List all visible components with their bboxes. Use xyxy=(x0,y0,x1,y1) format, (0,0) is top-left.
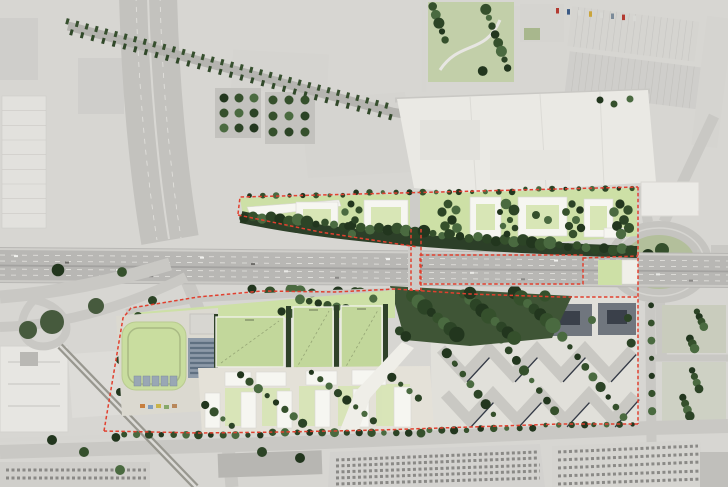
tree-icon xyxy=(648,320,655,327)
courtyard xyxy=(590,206,607,230)
tree-icon xyxy=(301,128,310,137)
tree-icon xyxy=(599,243,609,253)
tree-icon xyxy=(465,234,474,243)
tree-icon xyxy=(700,322,709,331)
tree-icon xyxy=(301,216,314,229)
tree-icon xyxy=(257,447,267,457)
tree-icon xyxy=(567,344,572,349)
tree-icon xyxy=(606,394,611,399)
industrial-roof xyxy=(78,58,124,114)
tree-icon xyxy=(344,222,352,230)
tree-icon xyxy=(235,109,244,118)
tree-icon xyxy=(627,96,634,103)
roof xyxy=(420,120,480,160)
car-icon xyxy=(656,273,660,275)
tree-icon xyxy=(649,373,655,379)
tree-icon xyxy=(512,356,521,365)
tree-icon xyxy=(501,57,507,63)
tree-icon xyxy=(564,243,572,251)
tree-icon xyxy=(301,96,310,105)
car-icon xyxy=(470,272,474,274)
tree-icon xyxy=(488,22,495,29)
tree-icon xyxy=(608,245,618,255)
tree-icon xyxy=(695,385,704,394)
tree-icon xyxy=(250,94,259,103)
tree-icon xyxy=(260,193,266,199)
tree-icon xyxy=(505,347,513,355)
ribbed-warehouse-roof xyxy=(2,96,46,228)
tree-icon xyxy=(369,295,377,303)
car-icon xyxy=(589,11,592,16)
car-icon xyxy=(521,278,525,280)
housing-slab xyxy=(315,390,330,427)
tree-icon xyxy=(568,200,575,207)
tree-icon xyxy=(315,299,322,306)
car-icon xyxy=(556,8,559,14)
car-icon xyxy=(578,10,581,16)
tree-icon xyxy=(428,2,437,11)
tree-icon xyxy=(504,231,511,238)
tree-icon xyxy=(497,209,503,215)
car-icon xyxy=(251,263,255,265)
tree-icon xyxy=(351,216,359,224)
tree-icon xyxy=(685,411,695,421)
tree-icon xyxy=(529,378,534,383)
industrial-roof xyxy=(0,18,38,80)
tree-icon xyxy=(482,234,492,244)
tree-icon xyxy=(504,426,509,431)
tree-icon xyxy=(401,331,412,342)
tree-icon xyxy=(265,393,270,398)
tree-icon xyxy=(220,109,229,118)
tree-icon xyxy=(615,199,624,208)
tree-icon xyxy=(572,216,580,224)
tree-icon xyxy=(556,422,561,427)
tree-icon xyxy=(306,429,313,436)
tree-icon xyxy=(648,390,655,397)
tree-icon xyxy=(348,201,355,208)
tree-icon xyxy=(237,371,244,378)
tree-icon xyxy=(309,370,314,375)
tree-icon xyxy=(437,207,446,216)
tree-icon xyxy=(281,406,288,413)
tree-icon xyxy=(624,314,632,322)
tree-icon xyxy=(79,447,89,457)
tree-icon xyxy=(439,28,445,34)
tree-icon xyxy=(491,236,501,246)
tree-icon xyxy=(452,223,462,233)
tree-icon xyxy=(555,241,562,248)
tree-icon xyxy=(112,433,121,442)
tree-icon xyxy=(464,428,469,433)
car-icon xyxy=(611,14,614,20)
tree-icon xyxy=(588,316,596,324)
tree-icon xyxy=(220,124,229,133)
tree-icon xyxy=(334,389,342,397)
tree-icon xyxy=(201,401,209,409)
tree-icon xyxy=(596,382,606,392)
tree-icon xyxy=(478,66,488,76)
tree-icon xyxy=(269,112,278,121)
tree-icon xyxy=(690,344,699,353)
car-icon xyxy=(633,16,636,22)
housing-slab xyxy=(241,392,256,428)
tree-icon xyxy=(452,361,457,366)
tree-icon xyxy=(356,224,364,232)
tree-icon xyxy=(417,429,426,438)
existing-building xyxy=(641,182,699,216)
tree-icon xyxy=(532,211,540,219)
tree-icon xyxy=(504,64,511,71)
tree-icon xyxy=(361,411,367,417)
tree-icon xyxy=(574,354,581,361)
tree-icon xyxy=(52,264,65,277)
tree-icon xyxy=(581,363,589,371)
building-roof xyxy=(218,450,323,478)
masterplan-aerial-map xyxy=(0,0,728,487)
tree-icon xyxy=(317,376,323,382)
tree-icon xyxy=(627,339,636,348)
tree-icon xyxy=(269,96,278,105)
tree-icon xyxy=(342,395,351,404)
tree-icon xyxy=(544,236,557,249)
tree-icon xyxy=(148,296,157,305)
tree-icon xyxy=(569,230,578,239)
car-icon xyxy=(284,270,288,272)
tree-icon xyxy=(620,413,628,421)
tree-icon xyxy=(115,465,125,475)
tree-icon xyxy=(340,193,345,198)
tree-icon xyxy=(480,4,491,15)
tree-icon xyxy=(444,200,453,209)
tree-icon xyxy=(19,321,37,339)
tree-icon xyxy=(321,219,329,227)
tree-icon xyxy=(387,373,396,382)
tree-icon xyxy=(341,208,348,215)
tree-icon xyxy=(648,407,656,415)
tree-icon xyxy=(500,223,506,229)
tree-icon xyxy=(613,404,620,411)
tree-icon xyxy=(588,372,597,381)
tree-icon xyxy=(269,128,278,137)
car-icon xyxy=(622,15,625,21)
bleachers xyxy=(134,376,177,386)
tree-icon xyxy=(353,404,358,409)
tree-icon xyxy=(313,221,320,228)
tree-icon xyxy=(330,221,338,229)
tree-icon xyxy=(295,294,305,304)
tree-icon xyxy=(648,337,656,345)
tree-icon xyxy=(442,348,452,358)
tree-icon xyxy=(430,230,437,237)
tree-icon xyxy=(460,371,467,378)
tree-icon xyxy=(229,423,235,429)
tree-icon xyxy=(415,395,422,402)
tree-icon xyxy=(210,407,219,416)
car-icon xyxy=(14,255,18,257)
tree-icon xyxy=(398,382,403,387)
tree-icon xyxy=(581,421,588,428)
tree-icon xyxy=(381,430,387,436)
tree-icon xyxy=(512,225,519,232)
tree-icon xyxy=(220,416,225,421)
tree-icon xyxy=(609,207,619,217)
tree-icon xyxy=(245,433,250,438)
tree-icon xyxy=(117,267,127,277)
yard xyxy=(524,28,540,40)
tree-icon xyxy=(474,390,483,399)
estate-courtyard xyxy=(607,310,627,324)
tree-icon xyxy=(562,208,570,216)
tree-icon xyxy=(393,430,400,437)
parking-lot xyxy=(0,462,150,487)
hedge-row xyxy=(286,306,291,374)
tree-icon xyxy=(370,417,377,424)
tree-icon xyxy=(298,419,307,428)
tree-icon xyxy=(326,383,333,390)
tree-icon xyxy=(405,429,413,437)
tree-icon xyxy=(235,94,244,103)
tree-icon xyxy=(278,307,286,315)
tree-icon xyxy=(536,387,543,394)
tree-icon xyxy=(365,225,375,235)
tree-icon xyxy=(573,241,581,249)
tree-icon xyxy=(509,205,520,216)
tree-icon xyxy=(507,331,521,345)
tree-icon xyxy=(577,224,585,232)
tree-icon xyxy=(649,356,654,361)
tree-icon xyxy=(576,206,584,214)
tree-icon xyxy=(569,422,575,428)
tree-icon xyxy=(473,232,482,241)
tree-icon xyxy=(486,15,492,21)
hedge-row xyxy=(334,305,339,374)
courtyard xyxy=(476,204,495,230)
tree-icon xyxy=(444,229,454,239)
car-icon xyxy=(65,262,69,264)
tree-icon xyxy=(648,302,654,308)
tree-icon xyxy=(550,406,559,415)
tree-icon xyxy=(394,190,399,195)
tree-icon xyxy=(285,96,294,105)
tree-icon xyxy=(625,245,636,256)
tree-icon xyxy=(456,232,464,240)
tree-icon xyxy=(491,412,496,417)
car-icon xyxy=(689,280,693,282)
tree-icon xyxy=(544,216,552,224)
housing-slab xyxy=(256,372,286,386)
tree-icon xyxy=(557,332,567,342)
tree-icon xyxy=(529,425,536,432)
tree-icon xyxy=(301,112,310,121)
tree-icon xyxy=(452,206,461,215)
tree-icon xyxy=(590,245,599,254)
tree-icon xyxy=(220,94,229,103)
tree-icon xyxy=(545,318,560,333)
tree-icon xyxy=(374,223,384,233)
tree-icon xyxy=(433,18,444,29)
tree-icon xyxy=(88,298,104,314)
masterplan-screenshot xyxy=(0,0,728,487)
tree-icon xyxy=(491,30,500,39)
tree-icon xyxy=(330,428,339,437)
car-icon xyxy=(335,277,339,279)
tree-icon xyxy=(623,205,632,214)
tree-icon xyxy=(285,112,294,121)
tree-icon xyxy=(449,327,464,342)
pitch-label xyxy=(357,308,366,310)
pitch-label xyxy=(309,309,318,311)
tree-icon xyxy=(689,367,695,373)
car-icon xyxy=(554,260,558,262)
tree-icon xyxy=(616,229,626,239)
tree-icon xyxy=(481,399,491,409)
tree-icon xyxy=(597,97,604,104)
tree-icon xyxy=(121,432,127,438)
tree-icon xyxy=(245,378,253,386)
paved-plot xyxy=(622,260,638,284)
tree-icon xyxy=(582,243,591,252)
tree-icon xyxy=(467,380,475,388)
tree-icon xyxy=(47,435,57,445)
tree-icon xyxy=(318,429,326,437)
tree-icon xyxy=(285,128,294,137)
tree-icon xyxy=(517,425,523,431)
tree-icon xyxy=(355,206,362,213)
courtyard xyxy=(526,205,559,229)
pitch-label xyxy=(245,319,254,321)
car-icon xyxy=(600,12,603,18)
tree-icon xyxy=(519,365,529,375)
car-icon xyxy=(386,258,390,260)
building-roof xyxy=(20,352,38,366)
lawn-plot xyxy=(598,260,622,285)
car-icon xyxy=(567,9,570,15)
tree-icon xyxy=(40,310,64,334)
tree-icon xyxy=(611,101,618,108)
tree-icon xyxy=(441,36,448,43)
tree-icon xyxy=(418,225,431,238)
tree-icon xyxy=(406,388,412,394)
building-roof xyxy=(700,452,728,487)
tree-icon xyxy=(235,124,244,133)
tree-icon xyxy=(254,384,263,393)
tree-icon xyxy=(250,109,259,118)
sports-hall-roof xyxy=(190,314,216,334)
tree-icon xyxy=(543,397,551,405)
tree-icon xyxy=(250,124,259,133)
car-icon xyxy=(200,257,204,259)
tree-icon xyxy=(507,217,513,223)
roof xyxy=(490,150,570,180)
tree-icon xyxy=(496,46,507,57)
tree-icon xyxy=(194,431,203,440)
tree-icon xyxy=(565,222,573,230)
tree-icon xyxy=(248,212,258,222)
tree-icon xyxy=(290,412,298,420)
tree-icon xyxy=(273,399,279,405)
tree-icon xyxy=(306,298,313,305)
tree-icon xyxy=(295,453,305,463)
crossing-street xyxy=(410,191,420,233)
parking-lot xyxy=(552,440,705,487)
